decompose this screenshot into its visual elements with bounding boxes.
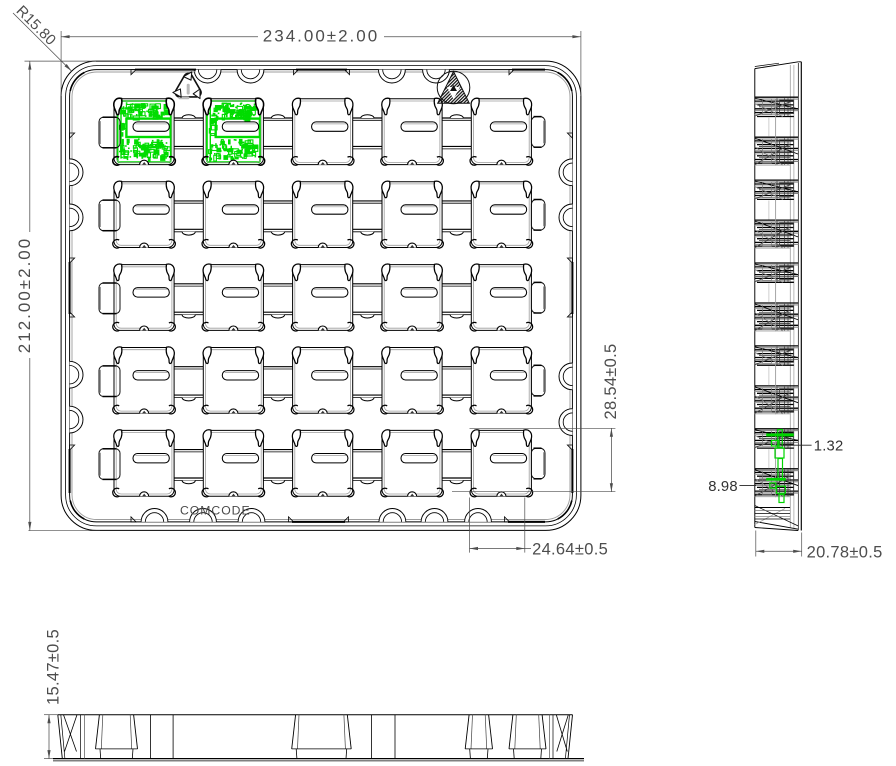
svg-text:20.78±0.5: 20.78±0.5 xyxy=(807,543,883,561)
svg-text:8.98: 8.98 xyxy=(708,479,738,495)
svg-text:1.32: 1.32 xyxy=(814,438,844,454)
svg-text:28.54±0.5: 28.54±0.5 xyxy=(602,344,620,420)
svg-text:234.00±2.00: 234.00±2.00 xyxy=(263,27,379,46)
svg-text:212.00±2.00: 212.00±2.00 xyxy=(15,237,34,353)
svg-text:24.64±0.5: 24.64±0.5 xyxy=(532,541,608,559)
svg-text:COMCODE: COMCODE xyxy=(180,504,251,518)
svg-text:15.47±0.5: 15.47±0.5 xyxy=(45,629,63,705)
